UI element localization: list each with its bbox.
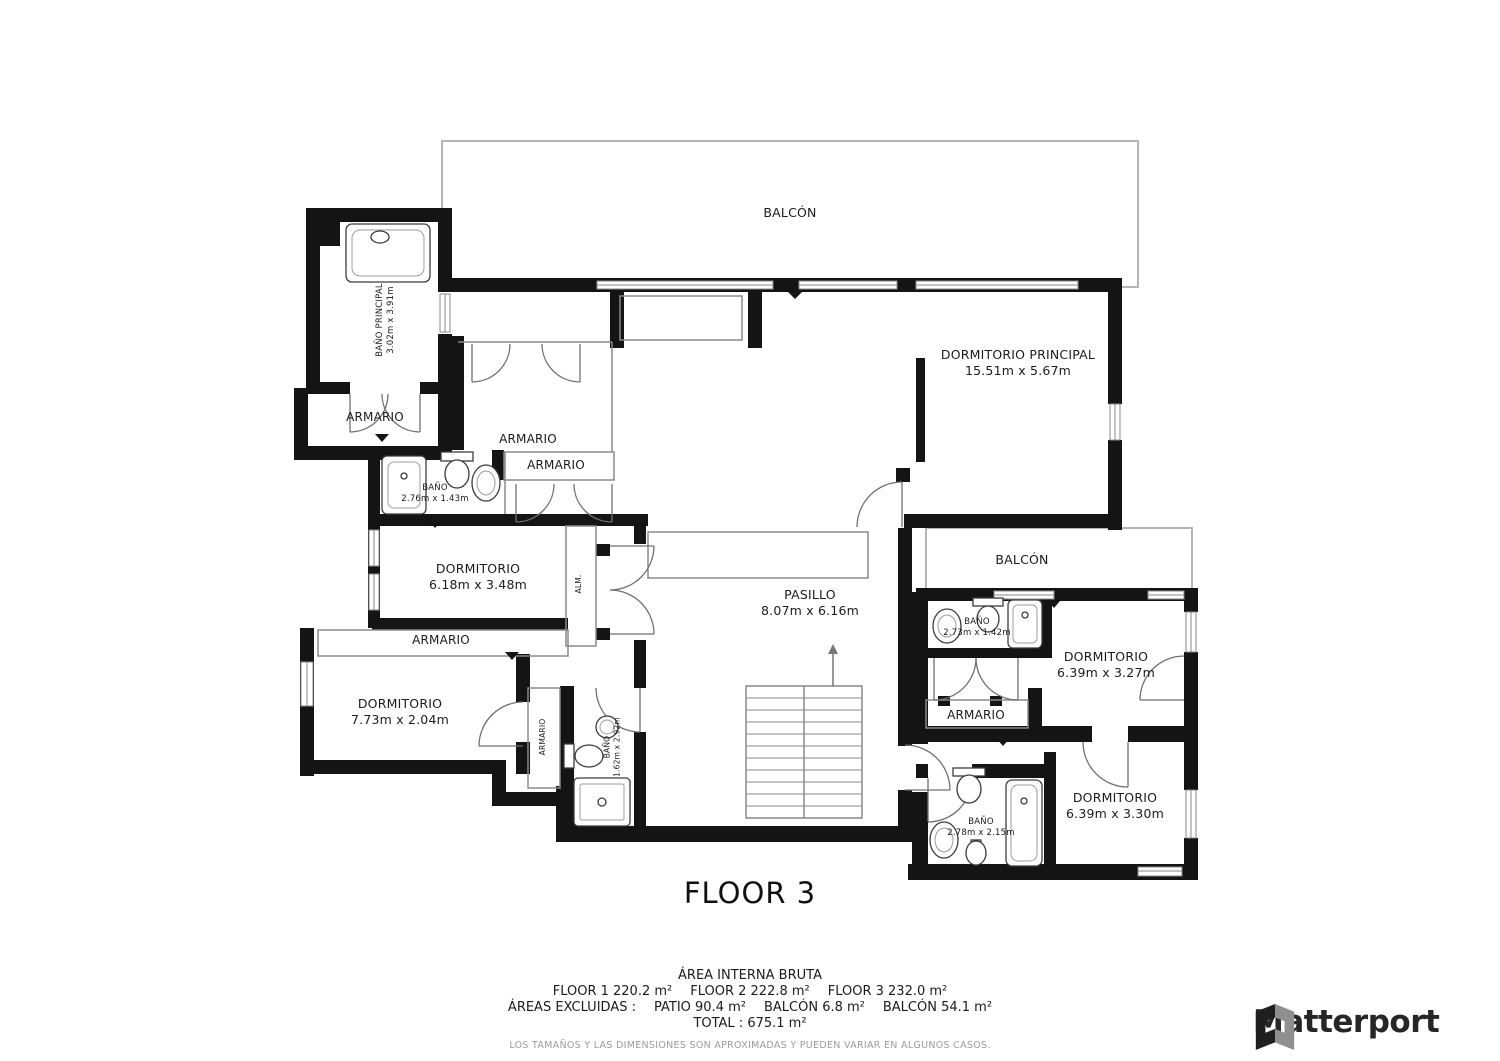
bathtub-icon [1008, 600, 1042, 648]
room-label-armario-shelf: ARMARIO [527, 458, 585, 474]
sink-icon [472, 465, 500, 501]
room-label-armario-walkin: ARMARIO [499, 432, 557, 448]
room-label-balcon-top: BALCÓN [763, 205, 816, 221]
room-label-dormitorio-618: DORMITORIO6.18m x 3.48m [429, 561, 527, 594]
room-label-bano-276: BAÑO2.76m x 1.43m [401, 483, 468, 505]
room-label-armario-vert: ARMARIO [538, 719, 548, 756]
room-label-dormitorio-330: DORMITORIO6.39m x 3.30m [1066, 790, 1164, 823]
room-label-balcon-right: BALCÓN [995, 552, 1048, 568]
room-label-pasillo: PASILLO8.07m x 6.16m [761, 587, 859, 620]
page-title: FLOOR 3 [684, 875, 816, 913]
matterport-logo: Matterport [1253, 1004, 1439, 1040]
room-label-alm: ALM. [574, 575, 584, 594]
room-label-armario-mid: ARMARIO [412, 633, 470, 649]
bidet-icon [966, 840, 986, 865]
stairs-icon [746, 644, 862, 818]
room-label-bano-278: BAÑO2.78m x 2.15m [947, 817, 1014, 839]
room-label-dormitorio-327: DORMITORIO6.39m x 3.27m [1057, 649, 1155, 682]
toilet-icon [564, 744, 603, 768]
shower-icon [574, 778, 630, 826]
room-label-dormitorio-principal: DORMITORIO PRINCIPAL15.51m x 5.67m [941, 347, 1095, 380]
area-floors: FLOOR 1 220.2 m²FLOOR 2 222.8 m²FLOOR 3 … [0, 984, 1500, 999]
room-label-bano-principal: BAÑO PRINCIPAL3.02m x 3.91m [375, 283, 397, 357]
area-heading: ÁREA INTERNA BRUTA [0, 968, 1500, 983]
room-label-bano-162: BAÑO1.62m x 2.92m [602, 717, 622, 777]
matterport-logo-icon [1253, 1004, 1297, 1050]
bathtub-icon [346, 224, 430, 282]
room-label-dormitorio-773: DORMITORIO7.73m x 2.04m [351, 696, 449, 729]
toilet-icon [953, 768, 985, 803]
room-label-bano-273: BAÑO2.73m x 1.42m [943, 617, 1010, 639]
room-label-armario-right: ARMARIO [947, 708, 1005, 724]
floor-plan-page: BALCÓN DORMITORIO PRINCIPAL15.51m x 5.67… [0, 0, 1500, 1061]
room-label-armario-left: ARMARIO [346, 410, 404, 426]
